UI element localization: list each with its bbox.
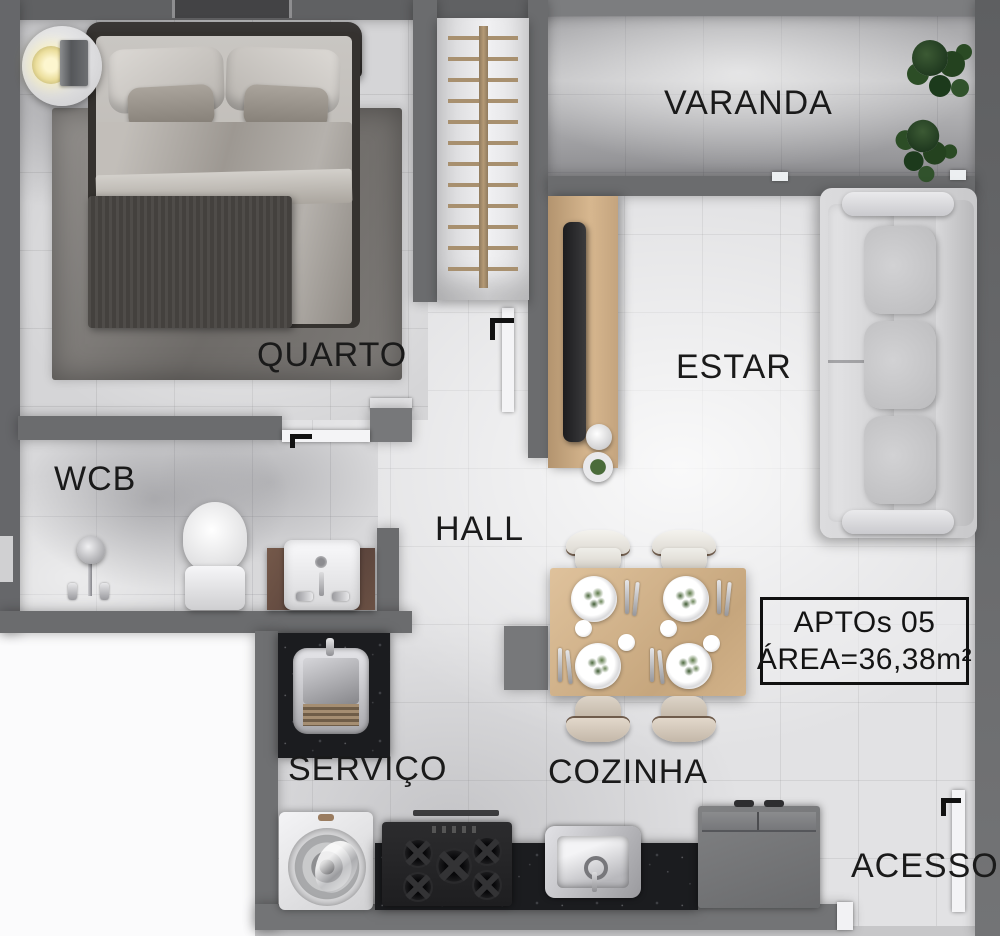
tv: [563, 222, 586, 442]
stove-burner: [472, 836, 502, 866]
sofa-cushion: [864, 321, 936, 409]
wall: [370, 408, 412, 442]
shower-tap: [68, 583, 77, 600]
cutlery: [717, 580, 721, 614]
stove-burner: [403, 872, 433, 902]
unit-area: ÁREA=36,38m²: [757, 641, 972, 678]
clothes-rail: [479, 26, 488, 288]
plate-garnish: [670, 583, 702, 615]
wall: [504, 626, 548, 690]
wall: [377, 528, 399, 616]
floorplan: APTOs 05 ÁREA=36,38m² VARANDA QUARTO EST…: [0, 0, 1000, 936]
wall: [413, 0, 437, 302]
cup: [618, 634, 635, 651]
door-frame: [837, 902, 853, 930]
sofa-backrest: [936, 200, 974, 526]
wall: [0, 611, 412, 633]
stove-knobs: [432, 826, 480, 833]
wall-niche: [0, 536, 13, 582]
cutlery: [625, 580, 629, 614]
unit-number: APTOs 05: [794, 604, 936, 641]
unit-label-box: APTOs 05 ÁREA=36,38m²: [760, 597, 969, 685]
room-label-servico: SERVIÇO: [288, 750, 447, 789]
door-quarto: [502, 308, 514, 412]
plate: [575, 643, 621, 689]
fridge-handle: [764, 800, 784, 807]
stove-burner: [472, 870, 502, 900]
kitchen-faucet-spout: [592, 872, 597, 892]
toilet-tank: [185, 566, 245, 610]
sink-drain: [315, 556, 327, 568]
cup: [660, 620, 677, 637]
window: [172, 0, 292, 18]
wall: [975, 0, 1000, 936]
laundry-sink-washboard: [303, 704, 359, 726]
sink-tap: [296, 592, 313, 601]
wall: [255, 631, 278, 930]
room-label-estar: ESTAR: [676, 348, 792, 387]
laundry-sink-basin: [303, 658, 359, 704]
decor-vase: [586, 424, 612, 450]
cutlery: [558, 648, 562, 682]
fridge-doors: [702, 812, 816, 832]
stove-burner: [436, 848, 472, 884]
door-handle: [941, 798, 946, 816]
sofa-cushion: [864, 226, 936, 314]
washer-knob: [318, 814, 334, 821]
stove-burner: [403, 838, 433, 868]
wall: [548, 0, 1000, 16]
plant: [912, 40, 948, 76]
plate-garnish: [578, 583, 610, 615]
plate: [663, 576, 709, 622]
room-label-wcb: WCB: [54, 460, 136, 499]
plate: [571, 576, 617, 622]
cup: [575, 620, 592, 637]
sink-faucet: [319, 572, 324, 596]
room-label-cozinha: COZINHA: [548, 753, 708, 792]
sliding-door-handle: [950, 170, 966, 180]
room-label-hall: HALL: [435, 510, 524, 549]
shower-head: [77, 536, 105, 564]
cup: [703, 635, 720, 652]
cactus-pot: [583, 452, 613, 482]
sink-tap: [332, 592, 349, 601]
sofa-armrest: [842, 510, 954, 534]
magazine: [60, 40, 88, 86]
toilet-bowl: [183, 502, 247, 572]
plate-garnish: [582, 650, 614, 682]
fridge-handle: [734, 800, 754, 807]
shower-tap: [100, 583, 109, 600]
door-handle: [290, 434, 295, 448]
bed: [86, 22, 362, 328]
cutlery: [650, 648, 654, 682]
room-label-varanda: VARANDA: [664, 84, 833, 123]
sofa-armrest: [842, 192, 954, 216]
laundry-faucet: [326, 638, 334, 656]
door-handle: [490, 318, 495, 340]
oven-handle: [413, 810, 499, 816]
sliding-door-handle: [772, 172, 788, 181]
wall: [528, 0, 548, 458]
fridge-door-divider: [757, 812, 759, 830]
wall: [18, 416, 282, 440]
sofa: [820, 188, 977, 538]
plate-garnish: [673, 650, 705, 682]
room-label-acesso: ACESSO: [851, 847, 999, 886]
exterior-area: [0, 631, 257, 936]
sofa-cushion: [864, 416, 936, 504]
room-label-quarto: QUARTO: [257, 336, 407, 375]
bed-throw-blanket: [88, 196, 292, 328]
